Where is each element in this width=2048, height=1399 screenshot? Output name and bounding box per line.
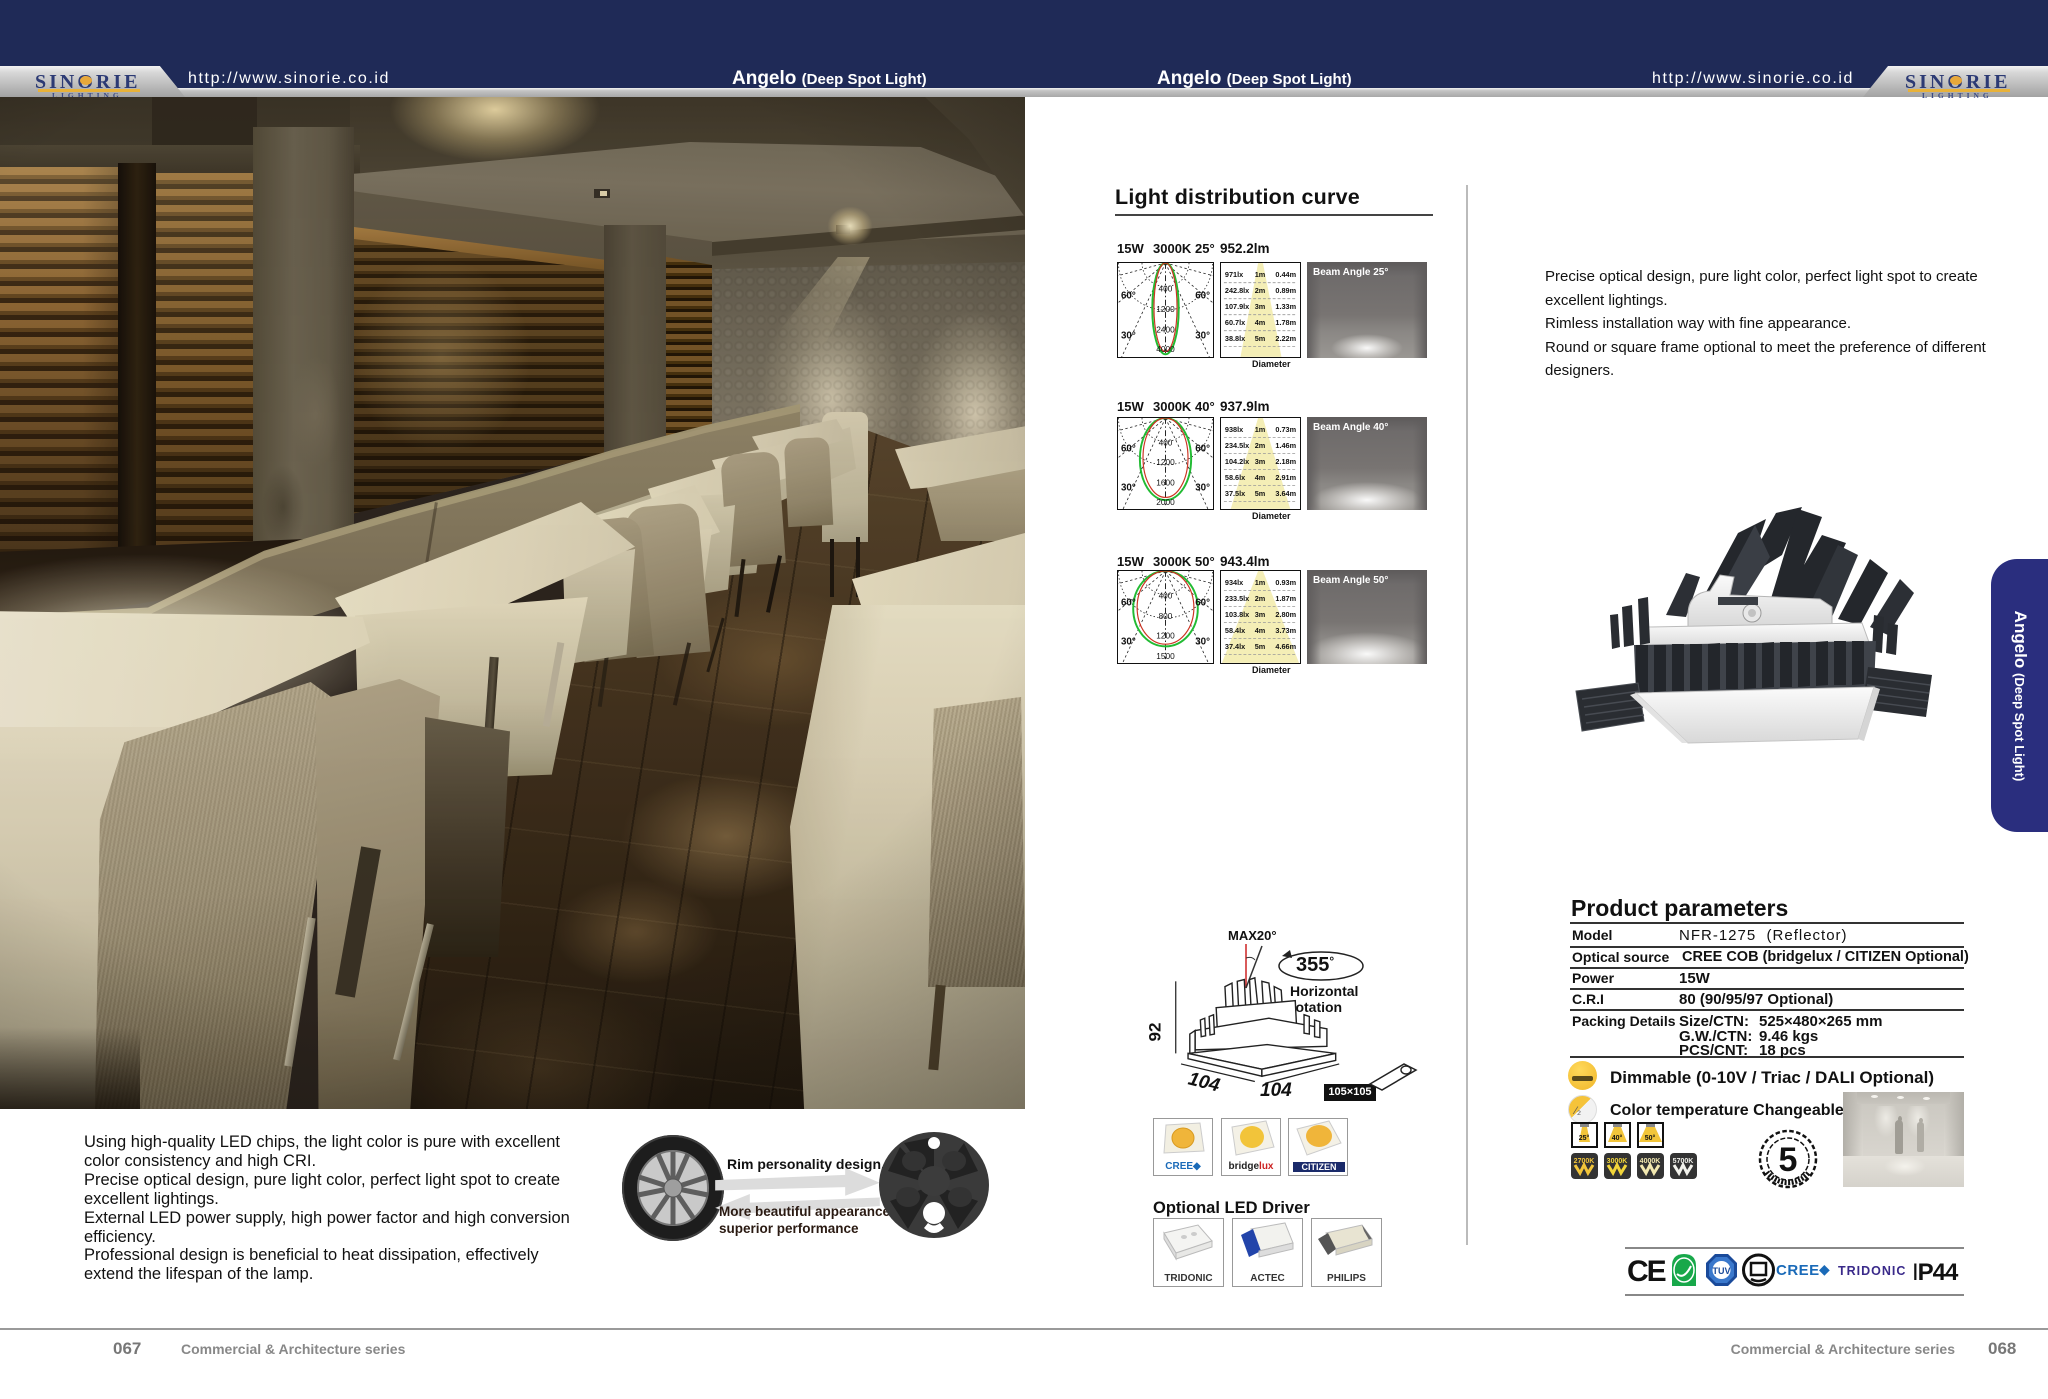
svg-text:2.80m: 2.80m <box>1275 610 1296 619</box>
svg-text:1200: 1200 <box>1156 304 1175 314</box>
svg-text:1.87m: 1.87m <box>1275 594 1296 603</box>
svg-text:3m: 3m <box>1255 610 1266 619</box>
svg-text:1200: 1200 <box>1156 631 1175 641</box>
svg-text:60.7lx: 60.7lx <box>1225 318 1245 327</box>
svg-text:2.22m: 2.22m <box>1275 334 1296 343</box>
svg-text:1.33m: 1.33m <box>1275 302 1296 311</box>
svg-text:1m: 1m <box>1255 425 1266 434</box>
svg-text:1200: 1200 <box>1156 457 1175 467</box>
svg-text:103.8lx: 103.8lx <box>1225 610 1249 619</box>
svg-text:30°: 30° <box>1195 330 1210 341</box>
svg-text:30°: 30° <box>1195 482 1210 493</box>
svg-text:60°: 60° <box>1121 597 1136 608</box>
svg-text:1m: 1m <box>1255 578 1266 587</box>
svg-text:40°: 40° <box>1612 1134 1623 1142</box>
svg-text:1.78m: 1.78m <box>1275 318 1296 327</box>
svg-text:3m: 3m <box>1255 457 1266 466</box>
svg-text:5m: 5m <box>1255 334 1266 343</box>
svg-text:3m: 3m <box>1255 302 1266 311</box>
svg-text:25°: 25° <box>1579 1134 1590 1142</box>
svg-text:800: 800 <box>1159 611 1173 621</box>
svg-text:60°: 60° <box>1195 597 1210 608</box>
svg-text:5m: 5m <box>1255 642 1266 651</box>
svg-text:38.8lx: 38.8lx <box>1225 334 1245 343</box>
svg-text:2m: 2m <box>1255 441 1266 450</box>
svg-text:30°: 30° <box>1121 482 1136 493</box>
svg-text:938lx: 938lx <box>1225 425 1243 434</box>
svg-text:60°: 60° <box>1195 290 1210 301</box>
svg-text:934lx: 934lx <box>1225 578 1243 587</box>
svg-text:2.91m: 2.91m <box>1275 473 1296 482</box>
svg-text:2400: 2400 <box>1156 325 1175 335</box>
svg-text:TUV: TUV <box>1713 1266 1731 1276</box>
svg-text:4m: 4m <box>1255 318 1266 327</box>
svg-text:4000: 4000 <box>1156 344 1175 354</box>
svg-text:58.4lx: 58.4lx <box>1225 626 1245 635</box>
svg-text:30°: 30° <box>1195 636 1210 647</box>
svg-text:37.5lx: 37.5lx <box>1225 489 1245 498</box>
svg-text:0.93m: 0.93m <box>1275 578 1296 587</box>
svg-text:60°: 60° <box>1121 443 1136 454</box>
svg-text:4m: 4m <box>1255 473 1266 482</box>
svg-text:3.64m: 3.64m <box>1275 489 1296 498</box>
svg-text:233.5lx: 233.5lx <box>1225 594 1249 603</box>
svg-text:400: 400 <box>1159 437 1173 447</box>
svg-text:234.5lx: 234.5lx <box>1225 441 1249 450</box>
svg-text:4m: 4m <box>1255 626 1266 635</box>
svg-text:971lx: 971lx <box>1225 270 1243 279</box>
svg-text:400: 400 <box>1159 590 1173 600</box>
svg-text:400: 400 <box>1159 283 1173 293</box>
svg-text:1.46m: 1.46m <box>1275 441 1296 450</box>
svg-text:2.18m: 2.18m <box>1275 457 1296 466</box>
svg-text:50°: 50° <box>1645 1134 1656 1142</box>
svg-text:242.8lx: 242.8lx <box>1225 286 1249 295</box>
svg-text:30°: 30° <box>1121 636 1136 647</box>
svg-text:30°: 30° <box>1121 330 1136 341</box>
svg-text:2000: 2000 <box>1156 497 1175 507</box>
svg-text:4.66m: 4.66m <box>1275 642 1296 651</box>
svg-text:104.2lx: 104.2lx <box>1225 457 1249 466</box>
svg-text:2m: 2m <box>1255 594 1266 603</box>
svg-text:5m: 5m <box>1255 489 1266 498</box>
svg-text:60°: 60° <box>1195 443 1210 454</box>
svg-text:1m: 1m <box>1255 270 1266 279</box>
svg-text:60°: 60° <box>1121 290 1136 301</box>
svg-text:58.6lx: 58.6lx <box>1225 473 1245 482</box>
svg-text:1600: 1600 <box>1156 478 1175 488</box>
svg-text:37.4lx: 37.4lx <box>1225 642 1245 651</box>
svg-text:0.73m: 0.73m <box>1275 425 1296 434</box>
svg-text:2m: 2m <box>1255 286 1266 295</box>
svg-text:107.9lx: 107.9lx <box>1225 302 1249 311</box>
svg-text:3.73m: 3.73m <box>1275 626 1296 635</box>
svg-text:0.44m: 0.44m <box>1275 270 1296 279</box>
svg-text:1500: 1500 <box>1156 651 1175 661</box>
svg-text:5: 5 <box>1779 1141 1798 1179</box>
svg-text:0.89m: 0.89m <box>1275 286 1296 295</box>
